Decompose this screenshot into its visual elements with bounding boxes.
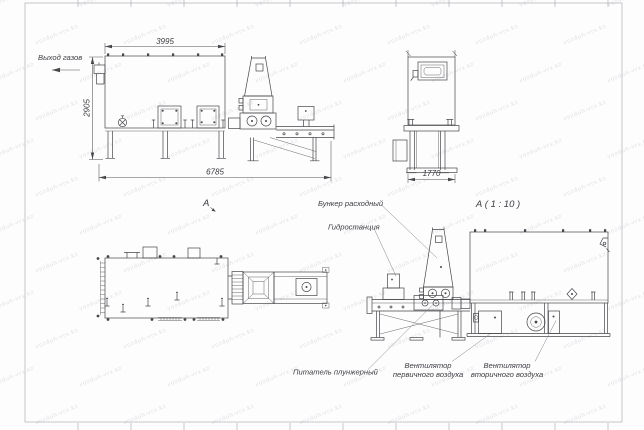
plan-anchor-marks — [105, 258, 225, 312]
detail-furnace — [467, 229, 610, 336]
secondary-fan-label-line1: Вентилятор — [483, 361, 530, 370]
end-body — [408, 57, 455, 125]
dim-top-value: 3995 — [156, 37, 174, 46]
view-a-letter: А — [202, 198, 209, 209]
detail-labels: Бункер расходный Гидростанция Питатель п… — [293, 199, 543, 379]
dim-width-value: 1770 — [423, 169, 441, 178]
primary-fan-label-line1: Вентилятор — [404, 361, 451, 370]
secondary-fan-label-line2: вторичного воздуха — [471, 370, 543, 379]
detail-feed-hopper — [420, 228, 454, 300]
end-support — [393, 120, 459, 173]
side-view: Выход газов 3995 2905 6785 А — [38, 37, 334, 212]
gas-outlet-label: Выход газов — [38, 53, 82, 62]
plan-view — [97, 247, 329, 321]
plan-left-comb — [101, 261, 106, 315]
dim-height-value: 2905 — [83, 99, 92, 118]
dimension-6785: 6785 — [99, 141, 331, 182]
hydraulic-station-label: Гидростанция — [328, 223, 380, 232]
cad-drawing: Выход газов 3995 2905 6785 А — [0, 0, 644, 430]
detail-leaders — [368, 205, 556, 370]
support-legs — [106, 131, 227, 158]
detail-title: А ( 1 : 10 ) — [475, 199, 520, 210]
feed-hopper-tower — [229, 56, 277, 129]
plunger-feeder-label: Питатель плунжерный — [293, 368, 379, 377]
detail-conveyor-truss — [371, 311, 465, 340]
diamond-port — [567, 289, 577, 300]
plan-ribbed-block — [232, 272, 243, 305]
furnace-legs — [467, 303, 610, 337]
primary-air-fan — [474, 311, 502, 334]
furnace-body — [94, 53, 225, 131]
sheet-frame — [25, 0, 622, 430]
gas-flow-arrow — [52, 68, 60, 72]
drawing-sheet: vozduh-vrv.kzvozduh-vrv.kzvozduh-vrv.kzv… — [0, 0, 644, 430]
plan-hopper-top — [243, 272, 274, 304]
primary-fan-label-line2: первичного воздуха — [393, 370, 463, 379]
dimension-2905: 2905 — [83, 57, 104, 160]
view-a-marker: А — [202, 198, 216, 212]
floor-bolts — [509, 292, 596, 300]
plan-feeder-housing — [274, 268, 329, 309]
gas-outlet-duct — [94, 63, 105, 85]
dimension-3995: 3995 — [105, 37, 225, 54]
conveyor — [248, 107, 335, 161]
secondary-air-fan — [527, 311, 560, 334]
end-view: 1770 — [393, 50, 459, 183]
plan-protrusions — [124, 247, 200, 258]
dim-total-value: 6785 — [206, 168, 224, 177]
feed-hopper-label: Бункер расходный — [318, 199, 384, 208]
valve — [118, 116, 126, 127]
plan-body — [105, 258, 228, 318]
furnace-top-bolts — [474, 229, 606, 232]
gas-outlet-annotation: Выход газов — [38, 53, 82, 72]
detail-conveyor — [367, 296, 470, 314]
detail-view: А ( 1 : 10 ) — [293, 199, 610, 379]
dimension-1770: 1770 — [408, 169, 455, 183]
plan-feeder-assembly — [228, 268, 329, 309]
inspection-hatches — [152, 106, 225, 128]
hydraulic-station — [383, 274, 404, 300]
end-hatch — [411, 62, 447, 81]
plan-edge-bolts — [97, 255, 225, 321]
